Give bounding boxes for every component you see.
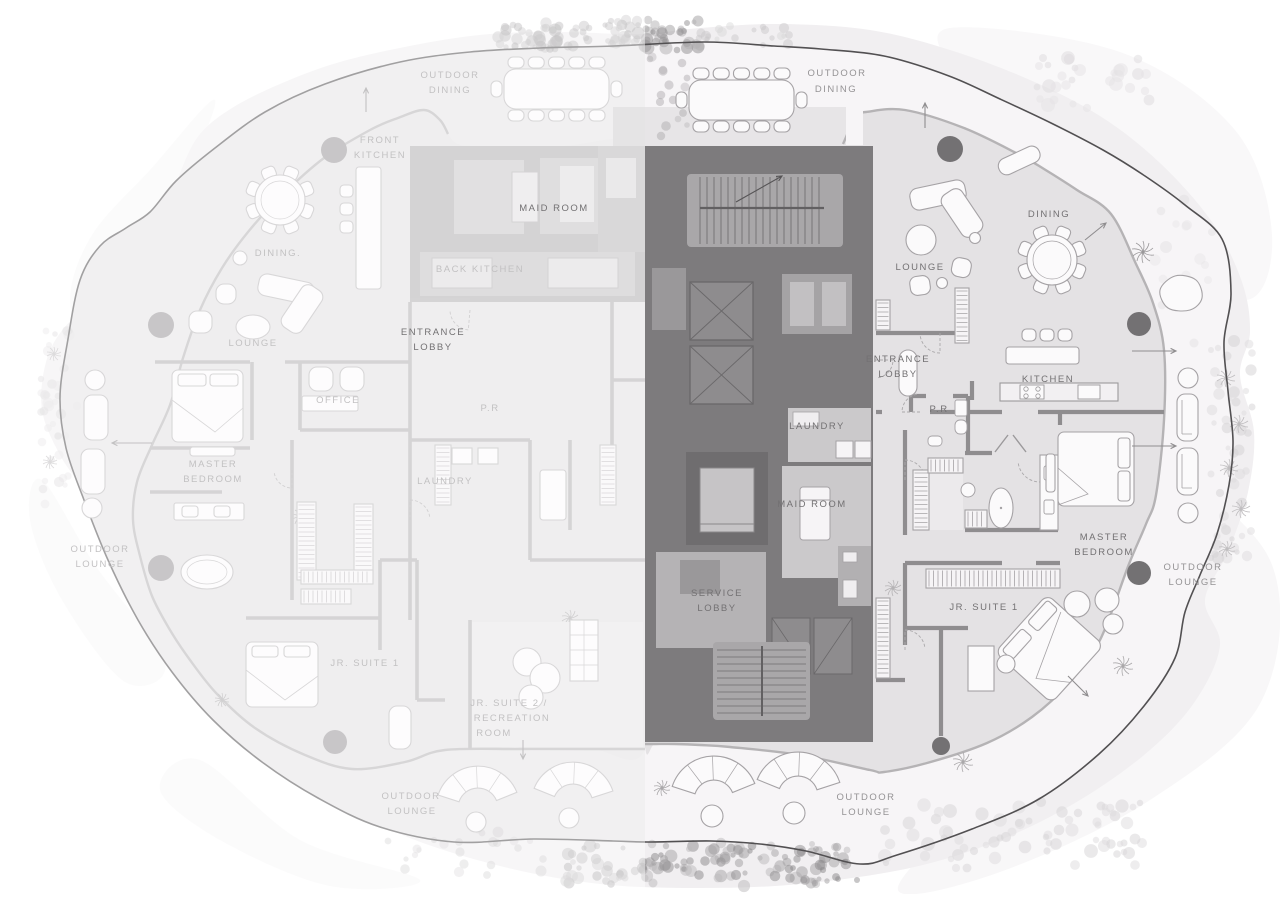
svg-text:DINING: DINING [1028, 209, 1070, 220]
svg-text:P.R: P.R [929, 404, 948, 415]
svg-text:KITCHEN: KITCHEN [1022, 374, 1074, 385]
svg-text:OUTDOOR: OUTDOOR [1163, 562, 1222, 573]
svg-text:MAID ROOM: MAID ROOM [777, 499, 846, 510]
svg-text:LOBBY: LOBBY [878, 369, 917, 380]
svg-text:MAID ROOM: MAID ROOM [519, 203, 588, 214]
svg-text:BEDROOM: BEDROOM [1074, 547, 1134, 558]
svg-text:JR. SUITE 1: JR. SUITE 1 [949, 602, 1018, 613]
svg-text:LAUNDRY: LAUNDRY [789, 421, 845, 432]
svg-text:ENTRANCE: ENTRANCE [866, 354, 930, 365]
svg-text:MASTER: MASTER [1080, 532, 1129, 543]
svg-text:LOUNGE: LOUNGE [895, 262, 944, 273]
svg-text:SERVICE: SERVICE [691, 588, 743, 599]
svg-text:LOUNGE: LOUNGE [841, 807, 890, 818]
svg-text:LOBBY: LOBBY [697, 603, 736, 614]
svg-text:OUTDOOR: OUTDOOR [807, 68, 866, 79]
svg-text:LOBBY: LOBBY [413, 342, 452, 353]
svg-text:DINING: DINING [815, 84, 857, 95]
svg-text:OUTDOOR: OUTDOOR [836, 792, 895, 803]
svg-text:ENTRANCE: ENTRANCE [401, 327, 465, 338]
svg-text:LOUNGE: LOUNGE [1168, 577, 1217, 588]
